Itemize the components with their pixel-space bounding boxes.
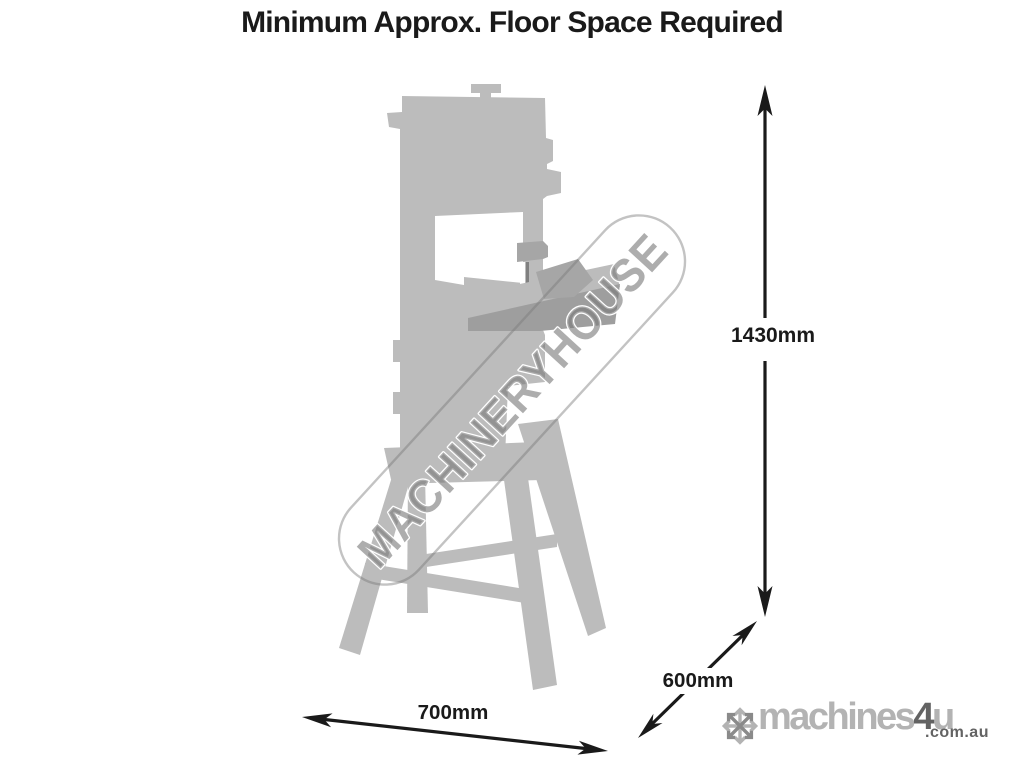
throat-window [435, 212, 523, 285]
snowflake-asterisk-icon [720, 703, 760, 747]
height-dimension-label: 1430mm [723, 324, 823, 348]
logo-domain-text: .com.au [925, 724, 989, 742]
machines4u-logo: machines4u .com.au [720, 697, 1000, 759]
logo-wordmark: machines4u [758, 697, 953, 739]
blade-guide [517, 241, 548, 262]
logo-brand-text: machines [758, 696, 913, 738]
width-dimension-label: 700mm [401, 701, 505, 725]
height-dimension-arrow [758, 85, 773, 617]
bandsaw-silhouette [339, 84, 620, 690]
diagram-canvas: Minimum Approx. Floor Space Required [0, 0, 1024, 768]
depth-dimension-label: 600mm [656, 668, 740, 694]
floor-space-diagram: MACHINERYHOUSE [0, 0, 1024, 768]
